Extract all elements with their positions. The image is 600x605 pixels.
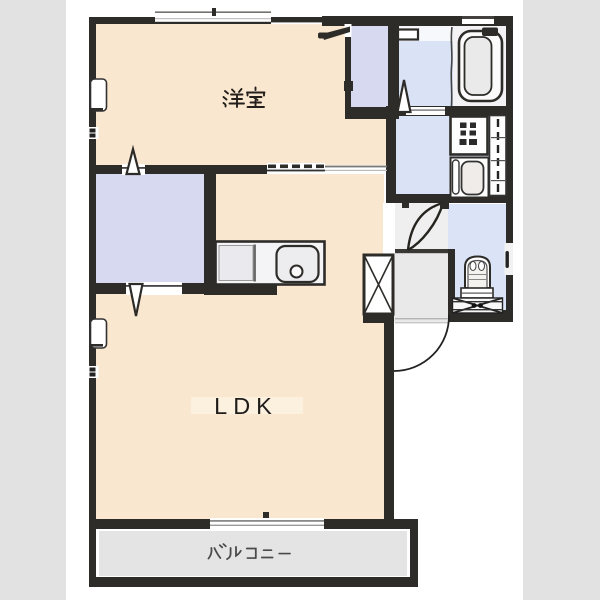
svg-text:LDK: LDK [214,393,278,419]
